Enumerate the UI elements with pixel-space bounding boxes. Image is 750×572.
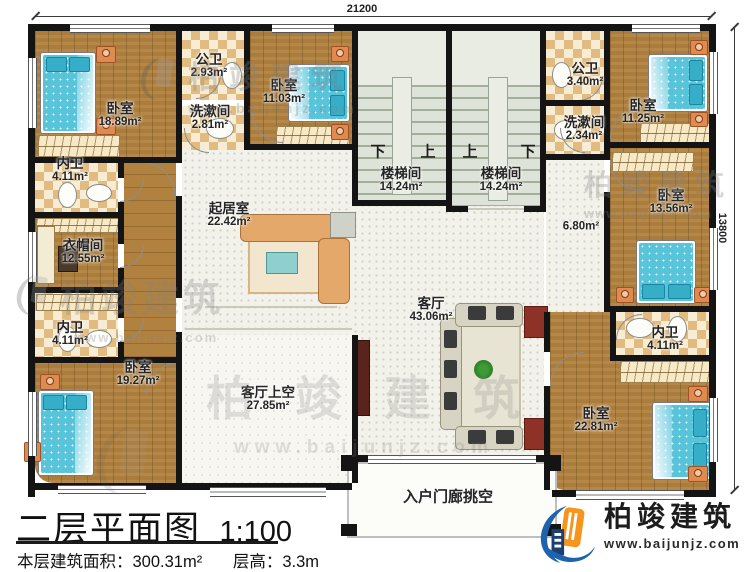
room-area: 19.27m² (117, 375, 160, 388)
floor-area-text: 本层建筑面积：300.31m² (17, 553, 202, 571)
room-name: 洗漱间 (564, 115, 605, 130)
coffee-table (266, 252, 298, 274)
room-name: 卧室 (99, 101, 142, 116)
room-area: 22.81m² (575, 421, 618, 434)
room-name: 公卫 (567, 61, 603, 76)
top-dimension-line (35, 16, 712, 17)
interior-wall (540, 24, 546, 206)
pillow (642, 284, 665, 299)
interior-wall (352, 200, 452, 206)
room-area: 2.81m² (190, 119, 231, 132)
interior-wall (546, 100, 610, 106)
cushion (444, 392, 457, 410)
pillow (330, 70, 345, 91)
pillow (46, 57, 67, 72)
window (28, 232, 37, 282)
room-area: 2.34m² (564, 130, 605, 143)
room-label-cloakroom: 衣帽间 12.55m² (62, 238, 105, 266)
room-name: 卧室 (117, 360, 160, 375)
window (709, 52, 718, 114)
cushion (468, 306, 486, 320)
room-label-bedroom-top-middle: 卧室 11.03m² (263, 78, 305, 106)
interior-wall (244, 24, 250, 150)
interior-wall (604, 24, 610, 160)
room-area: 4.11m² (52, 171, 88, 184)
room-name: 卧室 (650, 188, 693, 203)
watermark-logo-icon (92, 420, 162, 498)
floor-step-line (185, 328, 352, 330)
room-label-inner-bath-left-upper: 内卫 4.11m² (52, 156, 88, 184)
room-area: 22.42m² (208, 216, 251, 229)
nightstand (616, 287, 634, 303)
bed (636, 240, 696, 304)
interior-wall (176, 196, 182, 298)
interior-wall (244, 144, 358, 150)
nightstand (688, 386, 708, 402)
porch-corner (341, 524, 357, 536)
room-name: 衣帽间 (62, 238, 105, 253)
room-label-living: 客厅 43.06m² (410, 296, 453, 324)
window (70, 24, 150, 33)
interior-wall (118, 202, 124, 244)
room-label-washroom-right: 洗漱间 2.34m² (564, 115, 605, 143)
nightstand (690, 40, 708, 55)
interior-wall (524, 206, 546, 212)
nightstand (331, 124, 349, 140)
room-area: 3.40m² (567, 76, 603, 89)
wardrobe (620, 361, 711, 383)
interior-wall (28, 287, 124, 293)
room-label-sitting: 起居室 22.42m² (208, 201, 251, 229)
brand-text-group: 柏竣建筑 www.baijunjz.com (604, 502, 740, 551)
brand-name: 柏竣建筑 (604, 502, 740, 533)
pillow (689, 84, 703, 105)
room-label-bedroom-top-right: 卧室 11.25m² (622, 98, 664, 126)
nightstand (688, 466, 708, 482)
interior-wall (446, 24, 452, 212)
room-area: 4.11m² (647, 340, 683, 353)
room-label-inner-bath-left-lower: 内卫 4.11m² (52, 320, 88, 348)
cushion (496, 430, 514, 444)
room-label-public-bath-top-right: 公卫 3.40m² (567, 61, 603, 89)
floor-plan-canvas: 21200 13800 (0, 0, 750, 572)
porch-corner (547, 455, 561, 471)
plan-stats: 本层建筑面积：300.31m² 层高：3.3m (17, 548, 345, 572)
room-label-entry-porch: 入户门廊挑空 (403, 490, 493, 507)
side-table (330, 212, 356, 238)
pillow (668, 284, 691, 299)
room-label-bedroom-bottom-right: 卧室 22.81m² (575, 406, 618, 434)
room-label-hallway-area: 6.80m² (563, 221, 599, 234)
room-area: 43.06m² (410, 311, 453, 324)
room-name: 内卫 (52, 320, 88, 335)
pillow (330, 95, 345, 116)
room-area: 14.24m² (380, 181, 423, 194)
cushion (444, 360, 457, 378)
nightstand (690, 112, 708, 127)
room-area: 4.11m² (52, 335, 88, 348)
interior-wall (544, 312, 550, 352)
room-label-bedroom-right-middle: 卧室 13.56m² (650, 188, 693, 216)
pillow (66, 395, 87, 410)
stair-down-label: 下 (370, 141, 385, 162)
room-area: 12.55m² (62, 253, 105, 266)
wardrobe (36, 294, 120, 311)
room-label-bedroom-bottom-left: 卧室 19.27m² (117, 360, 160, 388)
stair-up-label: 上 (420, 141, 435, 162)
room-name: 楼梯间 (380, 166, 423, 181)
room-name: 客厅 (410, 296, 453, 311)
cushion (468, 430, 486, 444)
room-label-stairwell-right: 楼梯间 14.24m² (480, 166, 523, 194)
room-area: 11.03m² (263, 93, 305, 106)
title-underline (16, 541, 278, 544)
room-area: 11.25m² (622, 113, 664, 126)
sofa (318, 238, 350, 304)
pillow (689, 60, 703, 81)
pillow (43, 395, 64, 410)
room-label-bedroom-top-left: 卧室 18.89m² (99, 101, 142, 129)
room-label-public-bath-top-left: 公卫 2.93m² (191, 52, 227, 80)
room-name: 入户门廊挑空 (403, 490, 493, 507)
sink-fixture (86, 184, 112, 202)
room-area: 2.93m² (191, 67, 227, 80)
interior-wall (604, 306, 716, 312)
room-name: 客厅上空 (241, 385, 295, 400)
interior-wall (610, 355, 716, 361)
room-area: 27.85m² (241, 400, 295, 413)
room-name: 卧室 (263, 78, 305, 93)
stair-opening-edge (468, 208, 524, 210)
brand-block: 柏竣建筑 www.baijunjz.com (538, 502, 740, 564)
pillow (693, 409, 707, 437)
closet (37, 226, 55, 284)
bed-sheet (655, 405, 672, 477)
window (709, 228, 718, 290)
window (272, 24, 334, 33)
nightstand (96, 46, 116, 63)
room-label-living-void: 客厅上空 27.85m² (241, 385, 295, 413)
interior-wall (28, 212, 124, 218)
interior-wall (610, 312, 616, 361)
room-name: 内卫 (647, 325, 683, 340)
window (709, 398, 718, 462)
room-label-stairwell-left: 楼梯间 14.24m² (380, 166, 423, 194)
brand-url: www.baijunjz.com (604, 536, 740, 551)
top-dimension-label: 21200 (347, 3, 378, 15)
bed (38, 390, 94, 476)
pillow (69, 57, 90, 72)
interior-wall (604, 142, 716, 148)
stair-down-label: 下 (520, 141, 535, 162)
title-block: 二层平面图 1:100 (16, 501, 292, 552)
bay-window (576, 490, 684, 500)
room-area: 13.56m² (650, 203, 693, 216)
plan-scale: 1:100 (219, 516, 292, 549)
room-name: 公卫 (191, 52, 227, 67)
room-name: 卧室 (575, 406, 618, 421)
room-name: 洗漱间 (190, 104, 231, 119)
interior-wall (546, 154, 610, 160)
interior-wall (446, 206, 468, 212)
interior-wall (544, 386, 550, 490)
window (632, 24, 700, 33)
room-label-inner-bath-right: 内卫 4.11m² (647, 325, 683, 353)
wardrobe (38, 135, 120, 157)
window (28, 392, 37, 456)
toilet-fixture (58, 182, 77, 208)
sink-fixture (86, 330, 112, 348)
cushion (444, 330, 457, 348)
interior-wall (28, 157, 182, 163)
nightstand (331, 46, 349, 62)
cushion (496, 306, 514, 320)
right-dimension-line (734, 27, 735, 490)
room-label-washroom-left: 洗漱间 2.81m² (190, 104, 231, 132)
interior-wall (604, 192, 610, 312)
room-area: 18.89m² (99, 116, 142, 129)
stair-up-label: 上 (462, 141, 477, 162)
interior-wall (176, 24, 182, 162)
room-name: 楼梯间 (480, 166, 523, 181)
floor-height-text: 层高：3.3m (233, 553, 319, 571)
interior-wall (352, 24, 358, 206)
interior-wall (176, 332, 182, 490)
interior-wall (118, 268, 124, 318)
porch-corner (341, 455, 355, 471)
floor-step-line (205, 306, 337, 308)
plant (474, 360, 493, 379)
bay-window (210, 487, 326, 497)
room-area: 14.24m² (480, 181, 523, 194)
plan-title: 二层平面图 (16, 501, 201, 552)
room-name: 内卫 (52, 156, 88, 171)
tv-cabinet (356, 340, 370, 416)
room-name: 起居室 (208, 201, 251, 216)
bed (40, 52, 96, 134)
nightstand (40, 374, 60, 390)
room-name: 卧室 (622, 98, 664, 113)
window (28, 58, 37, 128)
window (368, 455, 536, 464)
room-area: 6.80m² (563, 221, 599, 234)
brand-logo-icon (538, 502, 596, 564)
